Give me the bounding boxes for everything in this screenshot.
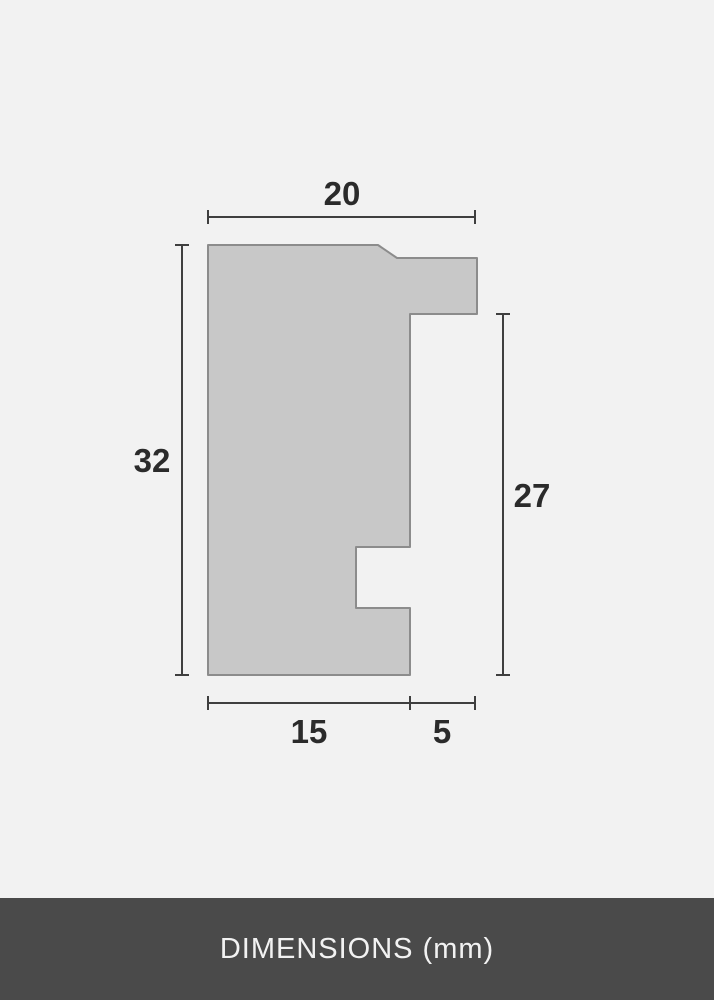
profile-diagram-area: 20 32 27 15 5 (0, 0, 714, 898)
profile-cross-section-shape (208, 245, 477, 675)
footer-bar: DIMENSIONS (mm) (0, 898, 714, 1000)
dimension-right-height: 27 (496, 314, 550, 675)
dimension-label-left-height: 32 (134, 442, 171, 479)
dimension-top-width: 20 (208, 175, 475, 224)
moulding-profile-diagram: 20 32 27 15 5 (0, 0, 714, 898)
dimension-label-top-width: 20 (324, 175, 361, 212)
dimension-label-bottom-outer-width: 5 (433, 713, 451, 750)
footer-units-label: DIMENSIONS (mm) (220, 933, 494, 966)
dimension-bottom-widths: 15 5 (208, 696, 475, 750)
dimension-label-bottom-inner-width: 15 (291, 713, 328, 750)
dimension-label-right-height: 27 (514, 477, 551, 514)
dimension-left-height: 32 (134, 245, 189, 675)
